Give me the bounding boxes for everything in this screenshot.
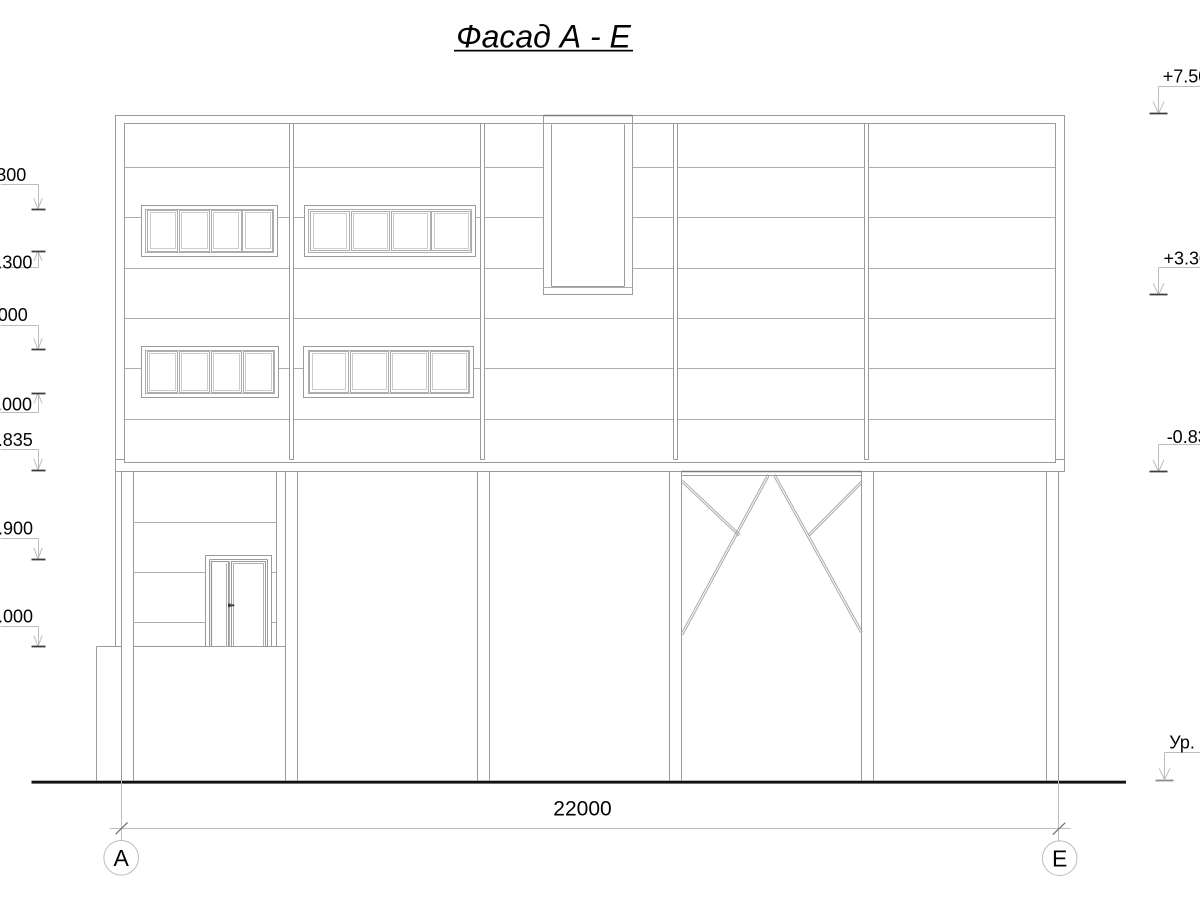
svg-text:-0.835: -0.835 (1167, 427, 1200, 447)
svg-text:Ур. земли: Ур. земли (1169, 732, 1200, 752)
svg-text:-3.000: -3.000 (0, 607, 33, 627)
svg-text:+1.000: +1.000 (0, 394, 32, 414)
svg-text:+7.500: +7.500 (1163, 66, 1200, 86)
svg-text:+3.300: +3.300 (0, 253, 32, 273)
svg-text:+4.300: +4.300 (0, 165, 26, 185)
svg-text:Фасад А - Е: Фасад А - Е (456, 19, 631, 55)
svg-text:А: А (114, 845, 130, 871)
svg-text:+3.300: +3.300 (1164, 249, 1200, 269)
svg-text:-0.835: -0.835 (0, 430, 33, 450)
svg-text:Е: Е (1052, 845, 1067, 871)
svg-text:+2.000: +2.000 (0, 305, 28, 325)
svg-text:-1.900: -1.900 (0, 519, 33, 539)
svg-text:22000: 22000 (553, 798, 611, 821)
